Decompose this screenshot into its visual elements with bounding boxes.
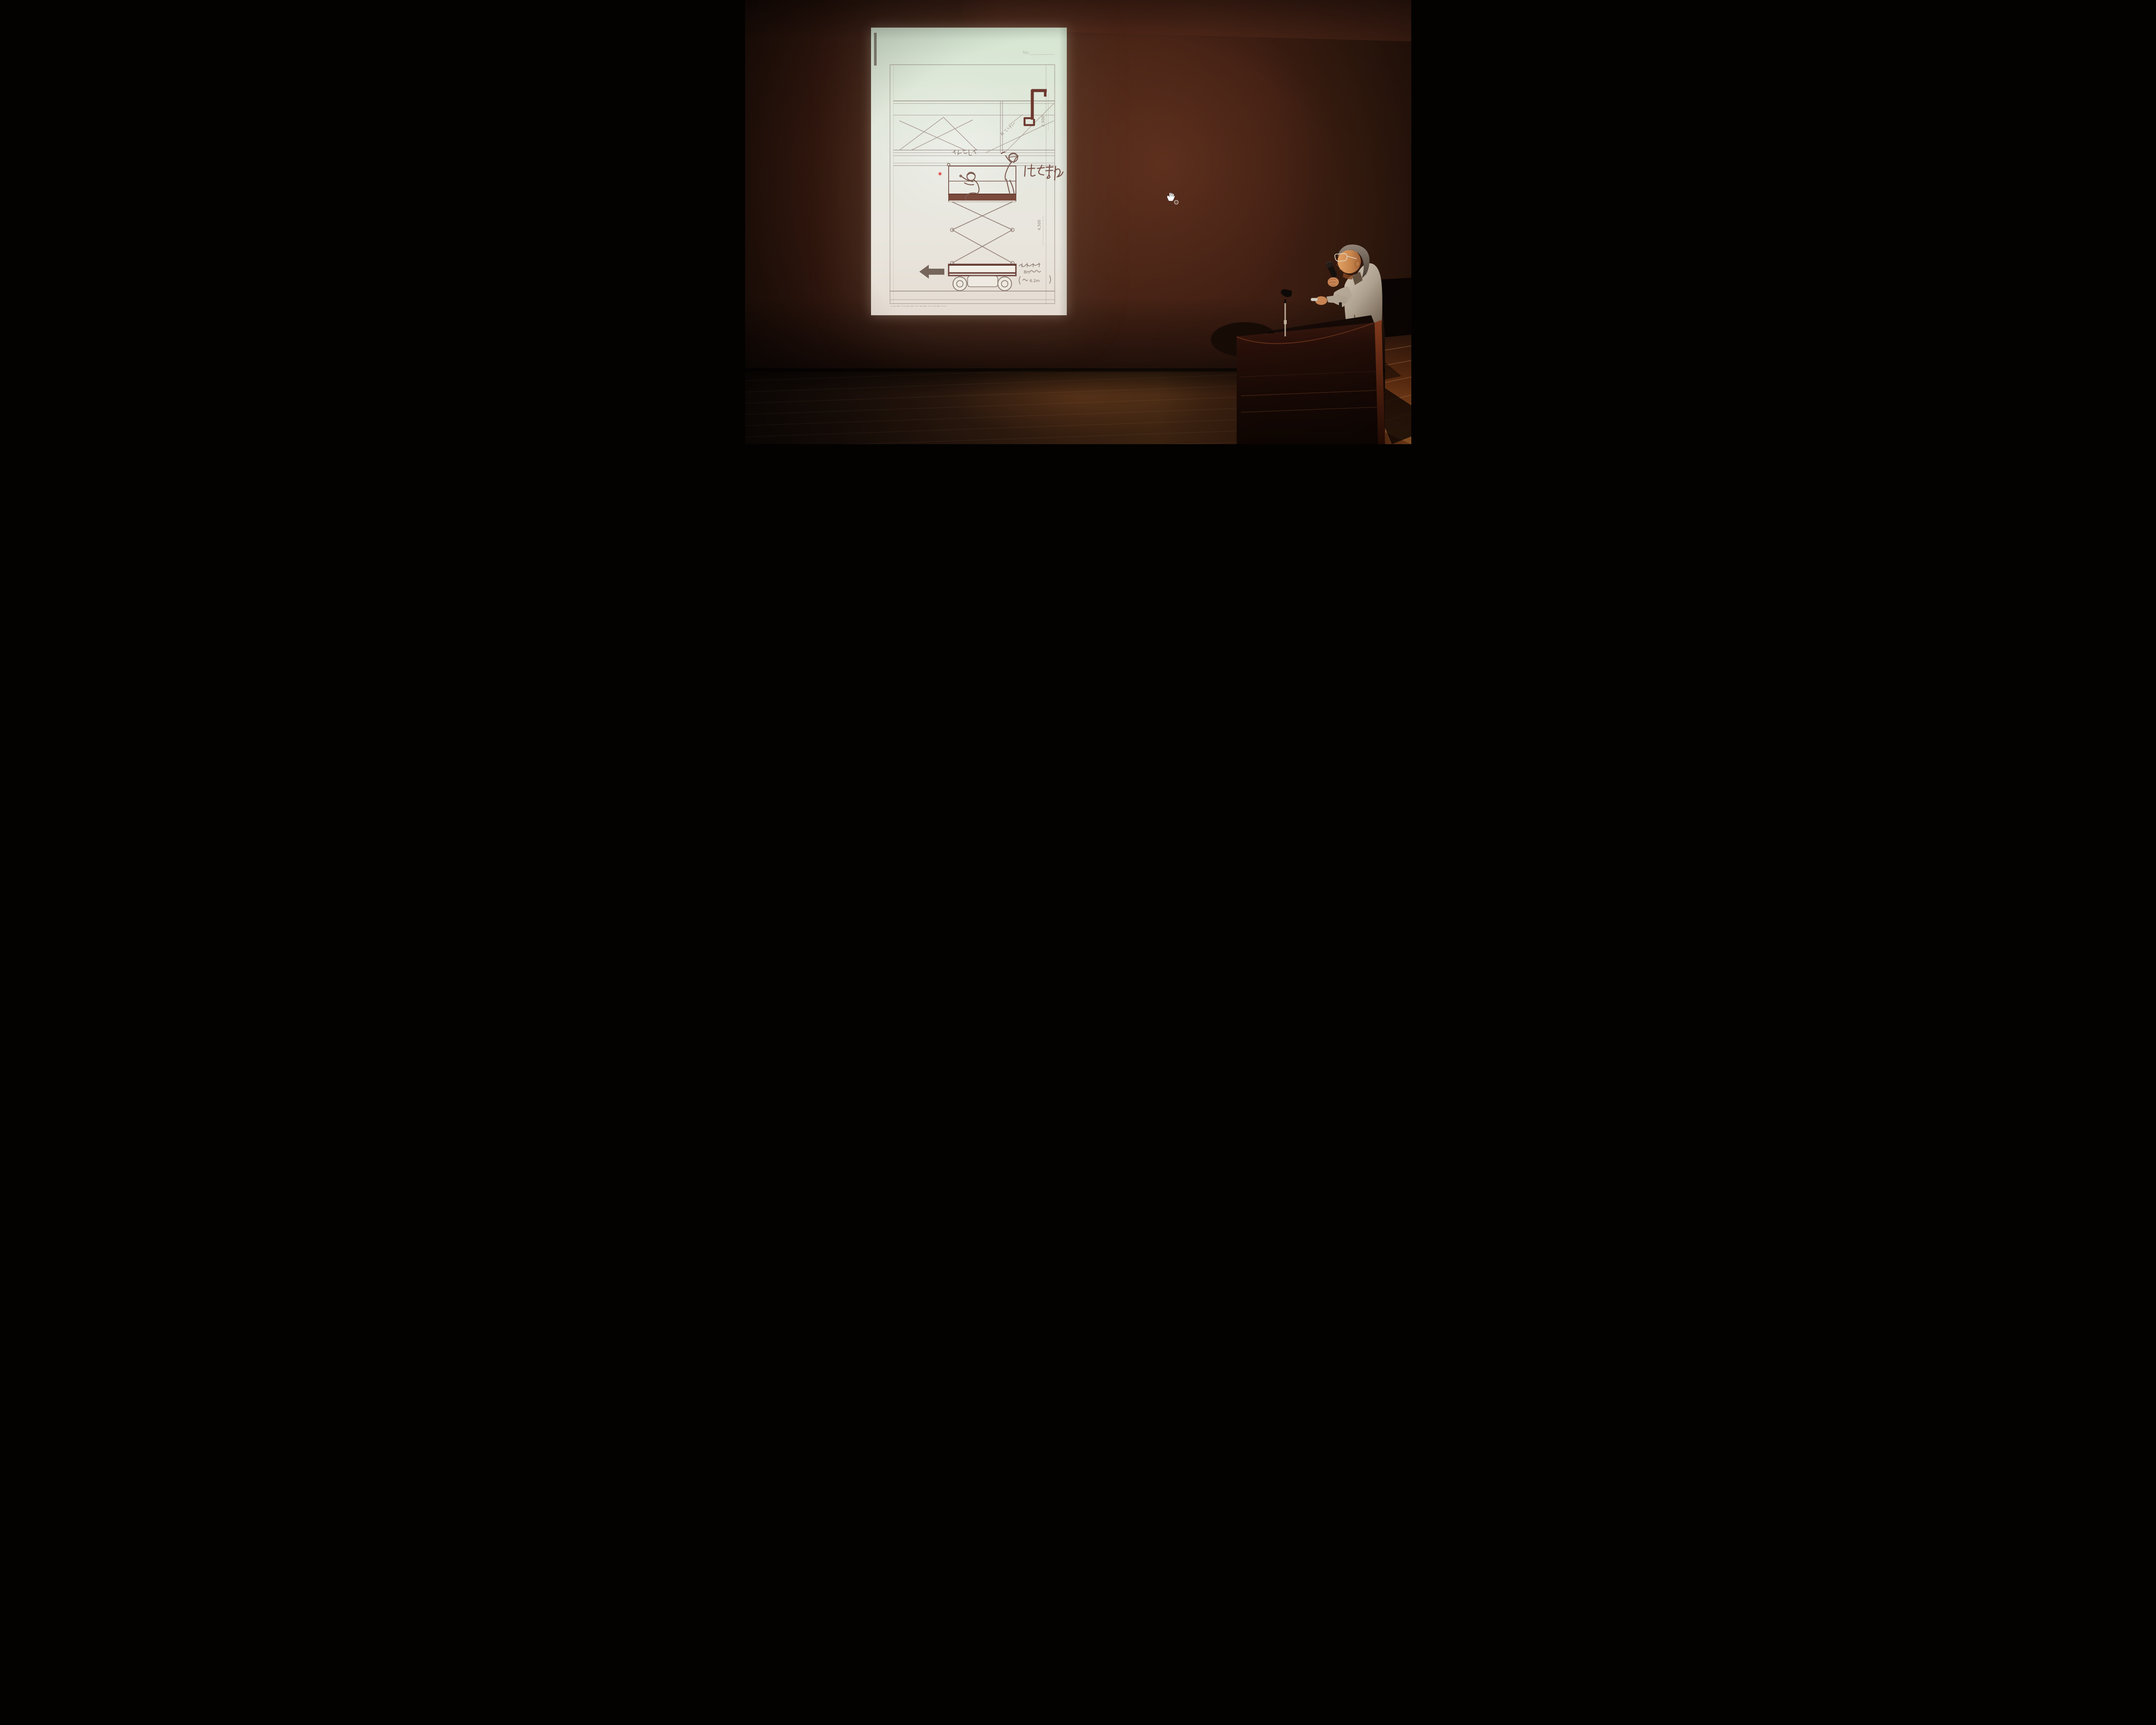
right-brace-drawing: [986, 103, 1054, 153]
wall-base-shadow: [745, 298, 1411, 372]
sheet-number-label: No.: [1023, 50, 1030, 55]
slide-sketch: No.: [871, 28, 1067, 315]
beam-lines: [893, 150, 1055, 166]
lift-base-drawing: [949, 264, 1016, 291]
wheel-right-drawing: [998, 277, 1012, 291]
hazard-label-drawing: [1025, 163, 1063, 181]
floor-wall-shadow: [745, 369, 1411, 395]
auditorium-photo: No.: [745, 0, 1411, 444]
direction-arrow-drawing: [919, 265, 944, 279]
platform-drawing: [947, 163, 1016, 202]
duct-note-drawing: [1000, 122, 1016, 135]
dimension-lower: 4,500: [1037, 216, 1043, 245]
ceiling-lines: [893, 101, 1055, 115]
machine-note-drawing: 8m 6.2m: [1019, 263, 1050, 284]
dimension-upper: 2,500: [1041, 93, 1048, 130]
machine-note-62m: 6.2m: [1030, 279, 1040, 283]
laser-pointer-dot: [938, 172, 942, 176]
sheet-number: No.: [1023, 50, 1054, 55]
dimension-upper-label: 2,500: [1041, 116, 1046, 127]
machine-note-8m: 8m: [1024, 270, 1030, 275]
projected-slide: No.: [871, 28, 1067, 315]
duct-note-leader: [1009, 114, 1023, 125]
paper-edge-dark-bar: [874, 33, 877, 66]
roof-brace-drawing: [899, 117, 977, 150]
wheel-left-drawing: [953, 277, 967, 291]
scissor-mechanism-drawing: [950, 202, 1014, 265]
sheet-number-underline: [1030, 54, 1054, 55]
ground-lines: [890, 291, 1055, 300]
dimension-lower-label: 4,500: [1037, 220, 1042, 230]
